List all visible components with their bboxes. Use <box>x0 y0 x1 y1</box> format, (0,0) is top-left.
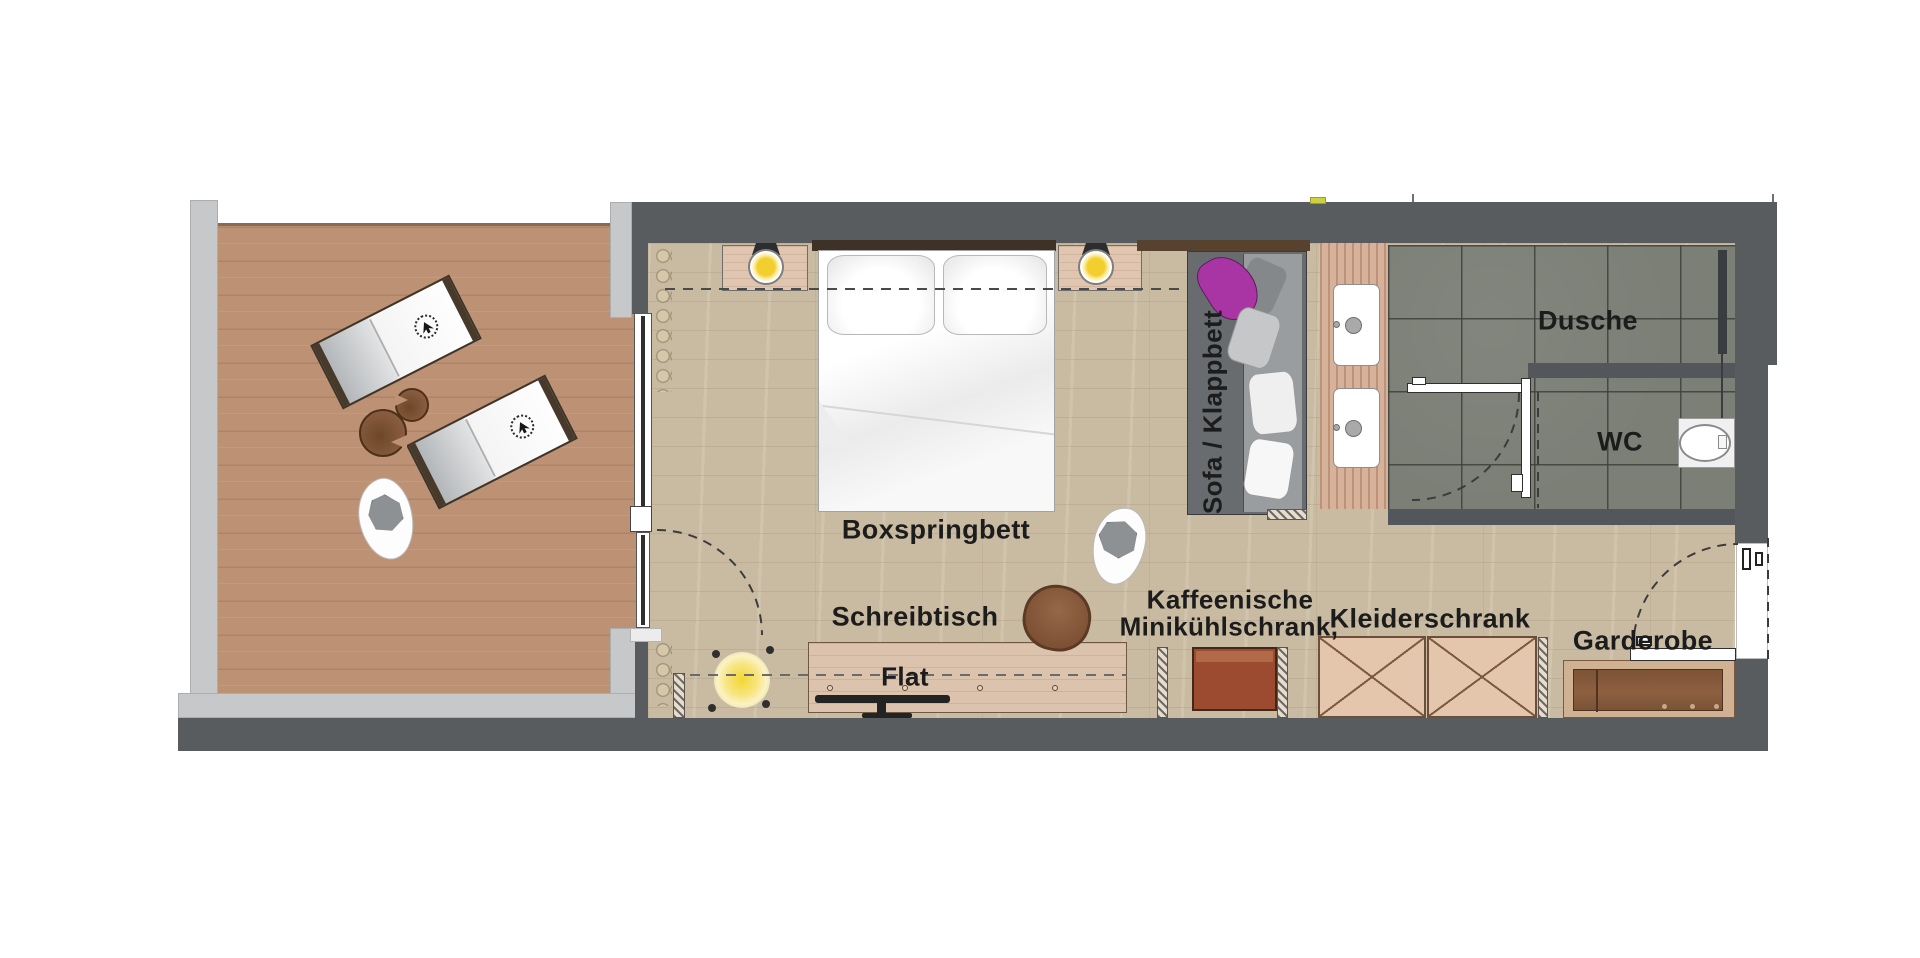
label-bed: Boxspringbett <box>842 515 1030 546</box>
label-tv: Flat <box>881 662 929 693</box>
label-desk: Schreibtisch <box>832 602 999 633</box>
label-shower: Dusche <box>1538 306 1638 337</box>
label-minifridge: Minikühlschrank, <box>1120 612 1339 643</box>
label-wardrobe: Kleiderschrank <box>1330 604 1531 635</box>
label-coatrack: Garderobe <box>1573 626 1713 657</box>
doorswing-overlay <box>0 0 1920 958</box>
label-toilet: WC <box>1597 427 1643 458</box>
label-sofa: Sofa / Klappbett <box>1198 310 1229 514</box>
floorplan-canvas: Boxspringbett Schreibtisch Flat Kaffeeni… <box>0 0 1920 958</box>
